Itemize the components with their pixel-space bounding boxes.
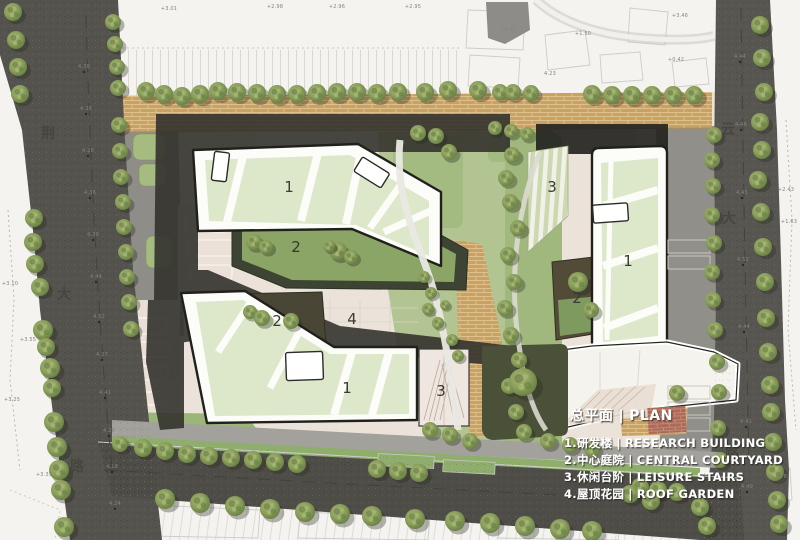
elevation-dot [104, 397, 106, 399]
legend-title: 总平面|PLAN [570, 407, 673, 424]
elevation-number: +1.50 [575, 31, 591, 37]
skylight [286, 351, 324, 380]
elevation-number: 4.41 [740, 419, 752, 425]
site-plan-image: +3.01+2.98+2.96+2.95+2.42+1.50+3.46+0.42… [0, 0, 800, 540]
elevation-number: 4.38 [78, 64, 90, 70]
elevation-number: 4.49 [741, 484, 753, 490]
elevation-dot [108, 435, 110, 437]
legend-item: 4.屋顶花园|ROOF GARDEN [564, 487, 735, 501]
elevation-dot [746, 491, 748, 493]
elevation-dot [739, 61, 741, 63]
elevation-dot [83, 71, 85, 73]
elevation-number: +2.98 [267, 4, 283, 10]
elevation-dot [101, 359, 103, 361]
label-research-1: 1 [284, 178, 294, 196]
elevation-number: +2.95 [405, 4, 421, 10]
left-road-name-char: 路 [70, 458, 85, 475]
skylight [211, 151, 229, 182]
elevation-number: +3.35 [36, 472, 52, 478]
elevation-number: 4.39 [87, 232, 99, 238]
elevation-number: 4.36 [84, 190, 96, 196]
legend-item: 2.中心庭院|CENTRAL COURTYARD [564, 453, 783, 467]
elevation-number: 4.18 [106, 464, 118, 470]
elevation-number: 4.28 [103, 428, 115, 434]
elevation-number: 4.26 [82, 148, 94, 154]
legend-item: 1.研发楼|RESEARCH BUILDING [564, 436, 765, 450]
elevation-number: +3.10 [2, 281, 18, 287]
elevation-number: +3.25 [4, 397, 20, 403]
label-stairs-3: 3 [436, 382, 446, 400]
elevation-dot [745, 426, 747, 428]
elevation-dot [95, 281, 97, 283]
elevation-dot [89, 197, 91, 199]
legend-item: 3.休闲台阶|LEISURE STAIRS [564, 470, 744, 484]
label-research-1: 1 [342, 379, 352, 397]
label-research-1: 1 [623, 252, 633, 270]
label-roof-garden-4: 4 [347, 310, 357, 328]
elevation-number: 4.44 [738, 324, 750, 330]
elevation-number: 4.44 [90, 274, 102, 280]
label-courtyard-2: 2 [291, 238, 301, 256]
elevation-dot [85, 113, 87, 115]
elevation-number: +0.42 [668, 57, 684, 63]
elevation-dot [92, 239, 94, 241]
elevation-number: +3.46 [672, 13, 688, 19]
right-road-name-char: 大 [722, 210, 736, 227]
label-stairs-3: 3 [547, 178, 557, 196]
elevation-number: +2.42 [500, 27, 516, 33]
elevation-number: 4.45 [736, 190, 748, 196]
elevation-dot [740, 129, 742, 131]
elevation-dot [87, 155, 89, 157]
elevation-dot [111, 471, 113, 473]
label-courtyard-2: 2 [272, 312, 282, 330]
elevation-number: +3.55 [20, 337, 36, 343]
elevation-number: +3.01 [161, 6, 177, 12]
elevation-number: +2.43 [778, 187, 794, 193]
elevation-number: 4.41 [99, 390, 111, 396]
elevation-number: 4.52 [93, 314, 105, 320]
elevation-dot [743, 331, 745, 333]
left-road-name-char: 大 [57, 286, 71, 303]
elevation-number: 4.44 [734, 54, 746, 60]
elevation-number: +2.96 [329, 4, 345, 10]
site-plan-canvas: +3.01+2.98+2.96+2.95+2.42+1.50+3.46+0.42… [0, 0, 800, 540]
elevation-number: 4.24 [109, 501, 121, 507]
elevation-number: 4.36 [80, 106, 92, 112]
elevation-number: 4.46 [735, 122, 747, 128]
elevation-dot [741, 197, 743, 199]
elevation-number: 4.23 [544, 71, 556, 77]
elevation-dot [742, 264, 744, 266]
left-road-name-char: 荆 [41, 125, 55, 142]
elevation-number: 4.27 [96, 352, 108, 358]
elevation-dot [98, 321, 100, 323]
elevation-number: +2.78 [771, 474, 787, 480]
elevation-number: +1.63 [781, 219, 797, 225]
elevation-number: 4.52 [737, 257, 749, 263]
skylight [592, 203, 628, 223]
elevation-dot [114, 508, 116, 510]
label-courtyard-2: 2 [572, 289, 582, 307]
right-road-name-char: 云 [721, 122, 735, 138]
